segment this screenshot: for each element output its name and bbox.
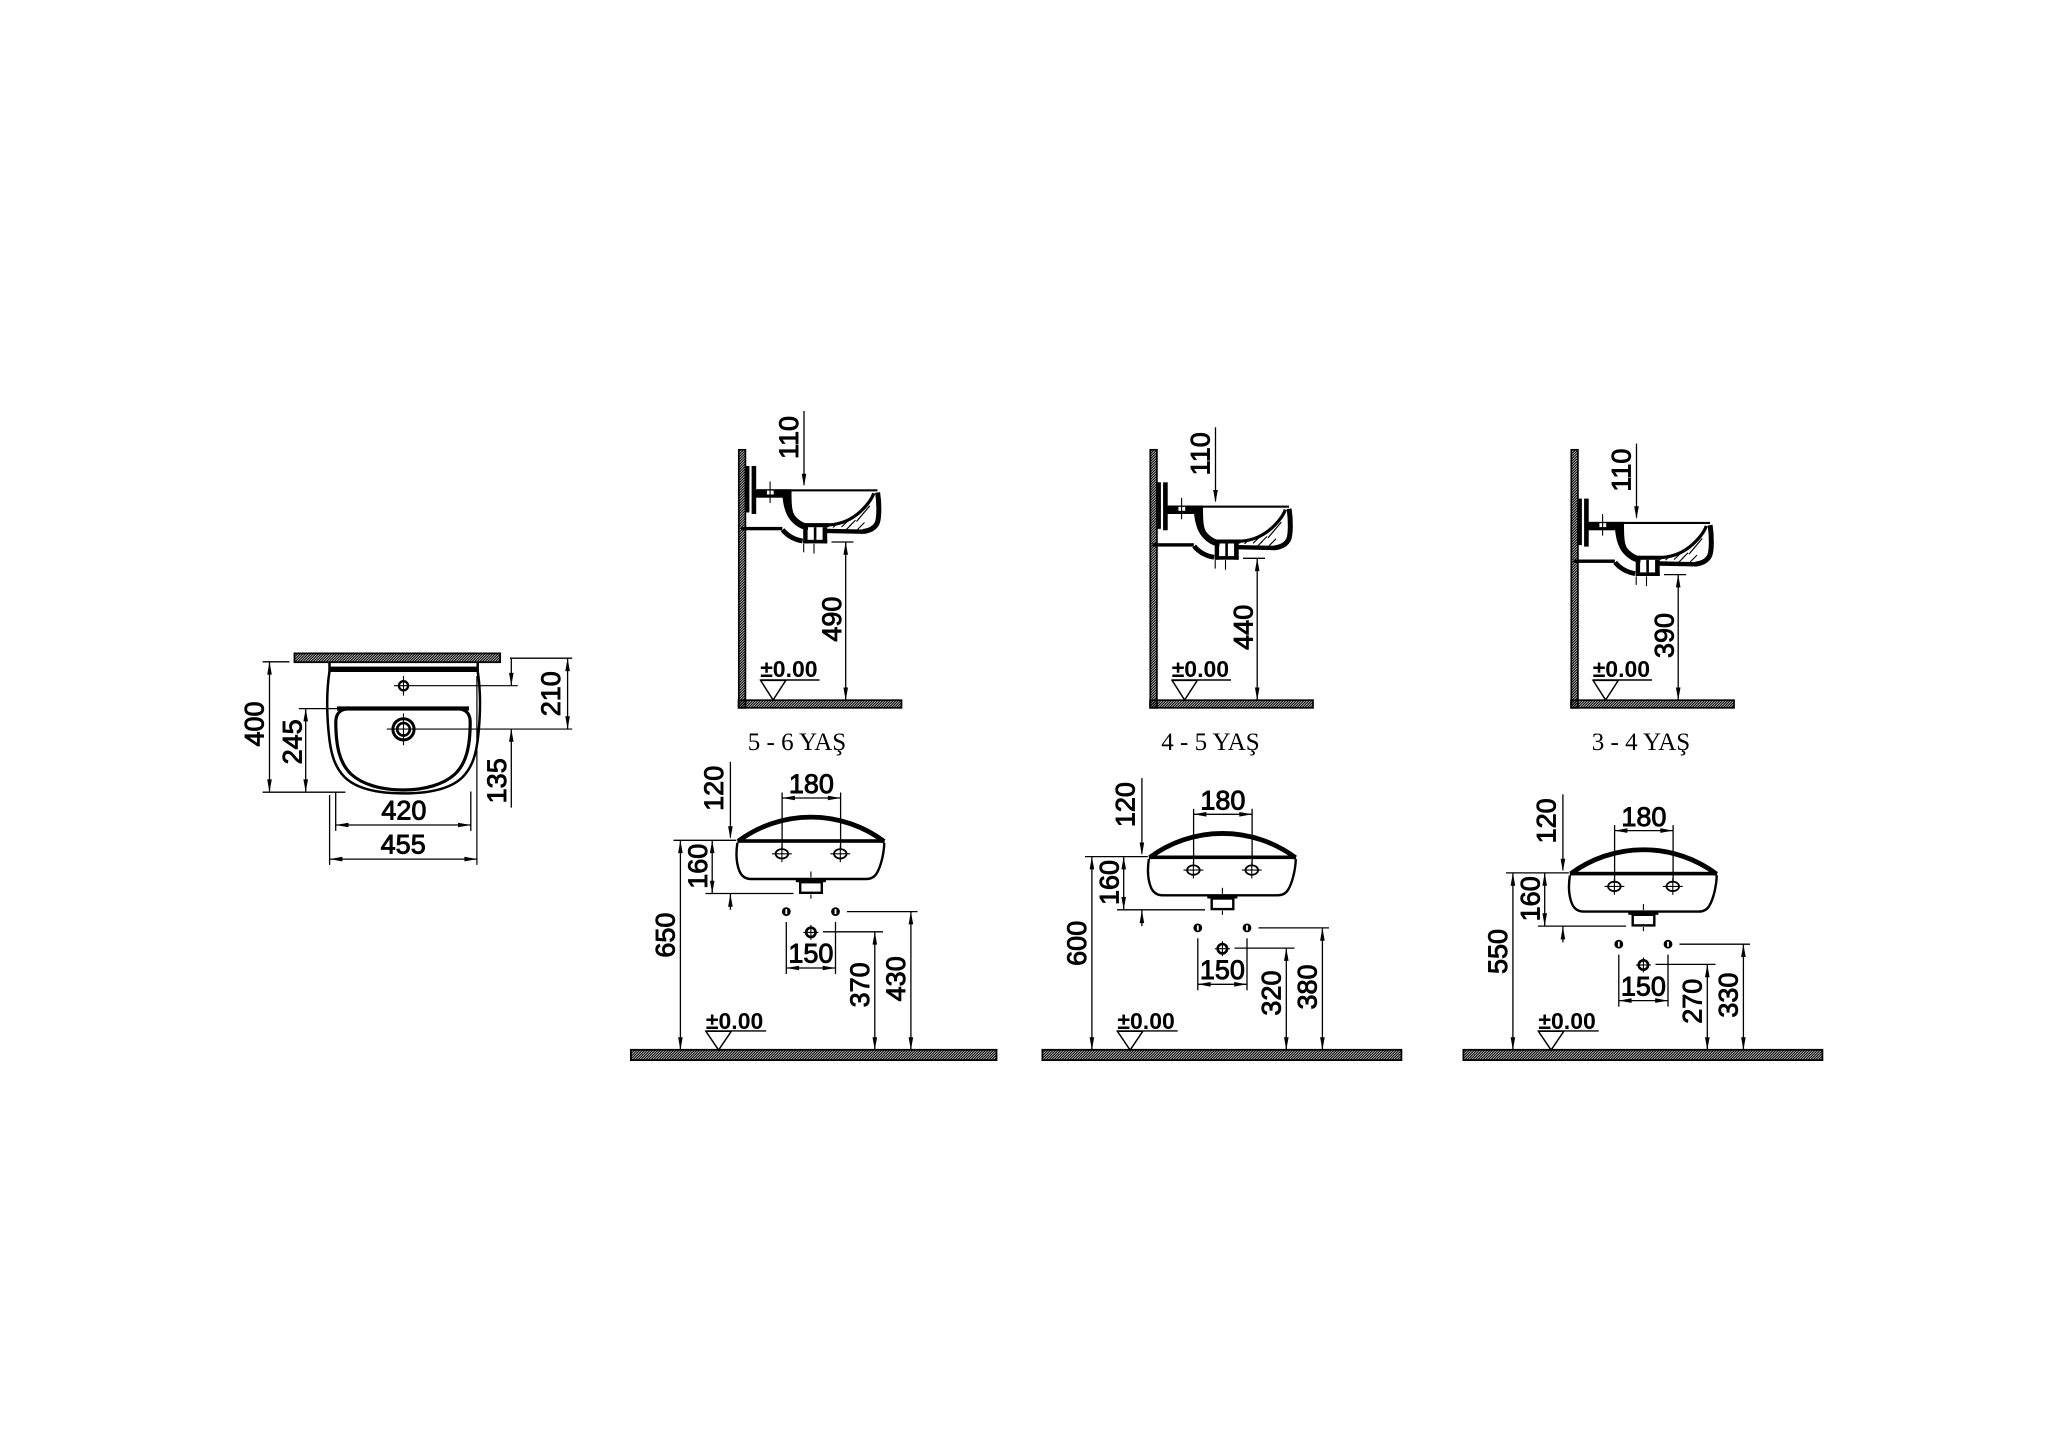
svg-text:600: 600 xyxy=(1062,921,1092,966)
svg-text:3 - 4 YAŞ: 3 - 4 YAŞ xyxy=(1592,729,1690,756)
svg-text:440: 440 xyxy=(1228,605,1258,650)
svg-text:650: 650 xyxy=(651,913,681,958)
svg-text:430: 430 xyxy=(881,956,911,1001)
svg-text:455: 455 xyxy=(381,830,426,860)
svg-text:±0.00: ±0.00 xyxy=(706,1008,763,1034)
svg-text:490: 490 xyxy=(817,597,847,642)
svg-text:±0.00: ±0.00 xyxy=(1117,1008,1174,1034)
svg-text:5 - 6 YAŞ: 5 - 6 YAŞ xyxy=(748,729,846,756)
svg-text:180: 180 xyxy=(1621,802,1666,832)
svg-text:400: 400 xyxy=(240,701,270,746)
svg-text:160: 160 xyxy=(1095,860,1125,905)
svg-text:245: 245 xyxy=(277,719,307,764)
svg-text:180: 180 xyxy=(789,769,834,799)
svg-text:±0.00: ±0.00 xyxy=(760,656,817,682)
svg-text:120: 120 xyxy=(699,766,729,811)
svg-text:120: 120 xyxy=(1110,782,1140,827)
svg-text:270: 270 xyxy=(1678,979,1708,1024)
svg-text:110: 110 xyxy=(1186,432,1216,475)
svg-text:150: 150 xyxy=(1621,971,1666,1001)
svg-text:±0.00: ±0.00 xyxy=(1172,656,1229,682)
svg-text:150: 150 xyxy=(788,939,833,969)
svg-text:±0.00: ±0.00 xyxy=(1593,656,1650,682)
svg-text:160: 160 xyxy=(1516,876,1546,921)
svg-text:320: 320 xyxy=(1257,971,1287,1016)
svg-text:210: 210 xyxy=(536,671,566,716)
svg-text:180: 180 xyxy=(1200,786,1245,816)
svg-text:380: 380 xyxy=(1293,964,1323,1009)
svg-text:420: 420 xyxy=(381,795,426,825)
svg-text:120: 120 xyxy=(1531,798,1561,843)
svg-text:150: 150 xyxy=(1200,955,1245,985)
svg-text:110: 110 xyxy=(1607,449,1637,492)
svg-text:330: 330 xyxy=(1714,973,1744,1018)
svg-text:±0.00: ±0.00 xyxy=(1538,1008,1595,1034)
svg-text:4 - 5 YAŞ: 4 - 5 YAŞ xyxy=(1161,729,1259,756)
svg-text:390: 390 xyxy=(1649,613,1679,658)
svg-text:370: 370 xyxy=(845,962,875,1007)
svg-text:135: 135 xyxy=(482,758,512,803)
svg-text:110: 110 xyxy=(774,416,804,459)
svg-text:550: 550 xyxy=(1483,929,1513,974)
svg-text:160: 160 xyxy=(683,844,713,889)
